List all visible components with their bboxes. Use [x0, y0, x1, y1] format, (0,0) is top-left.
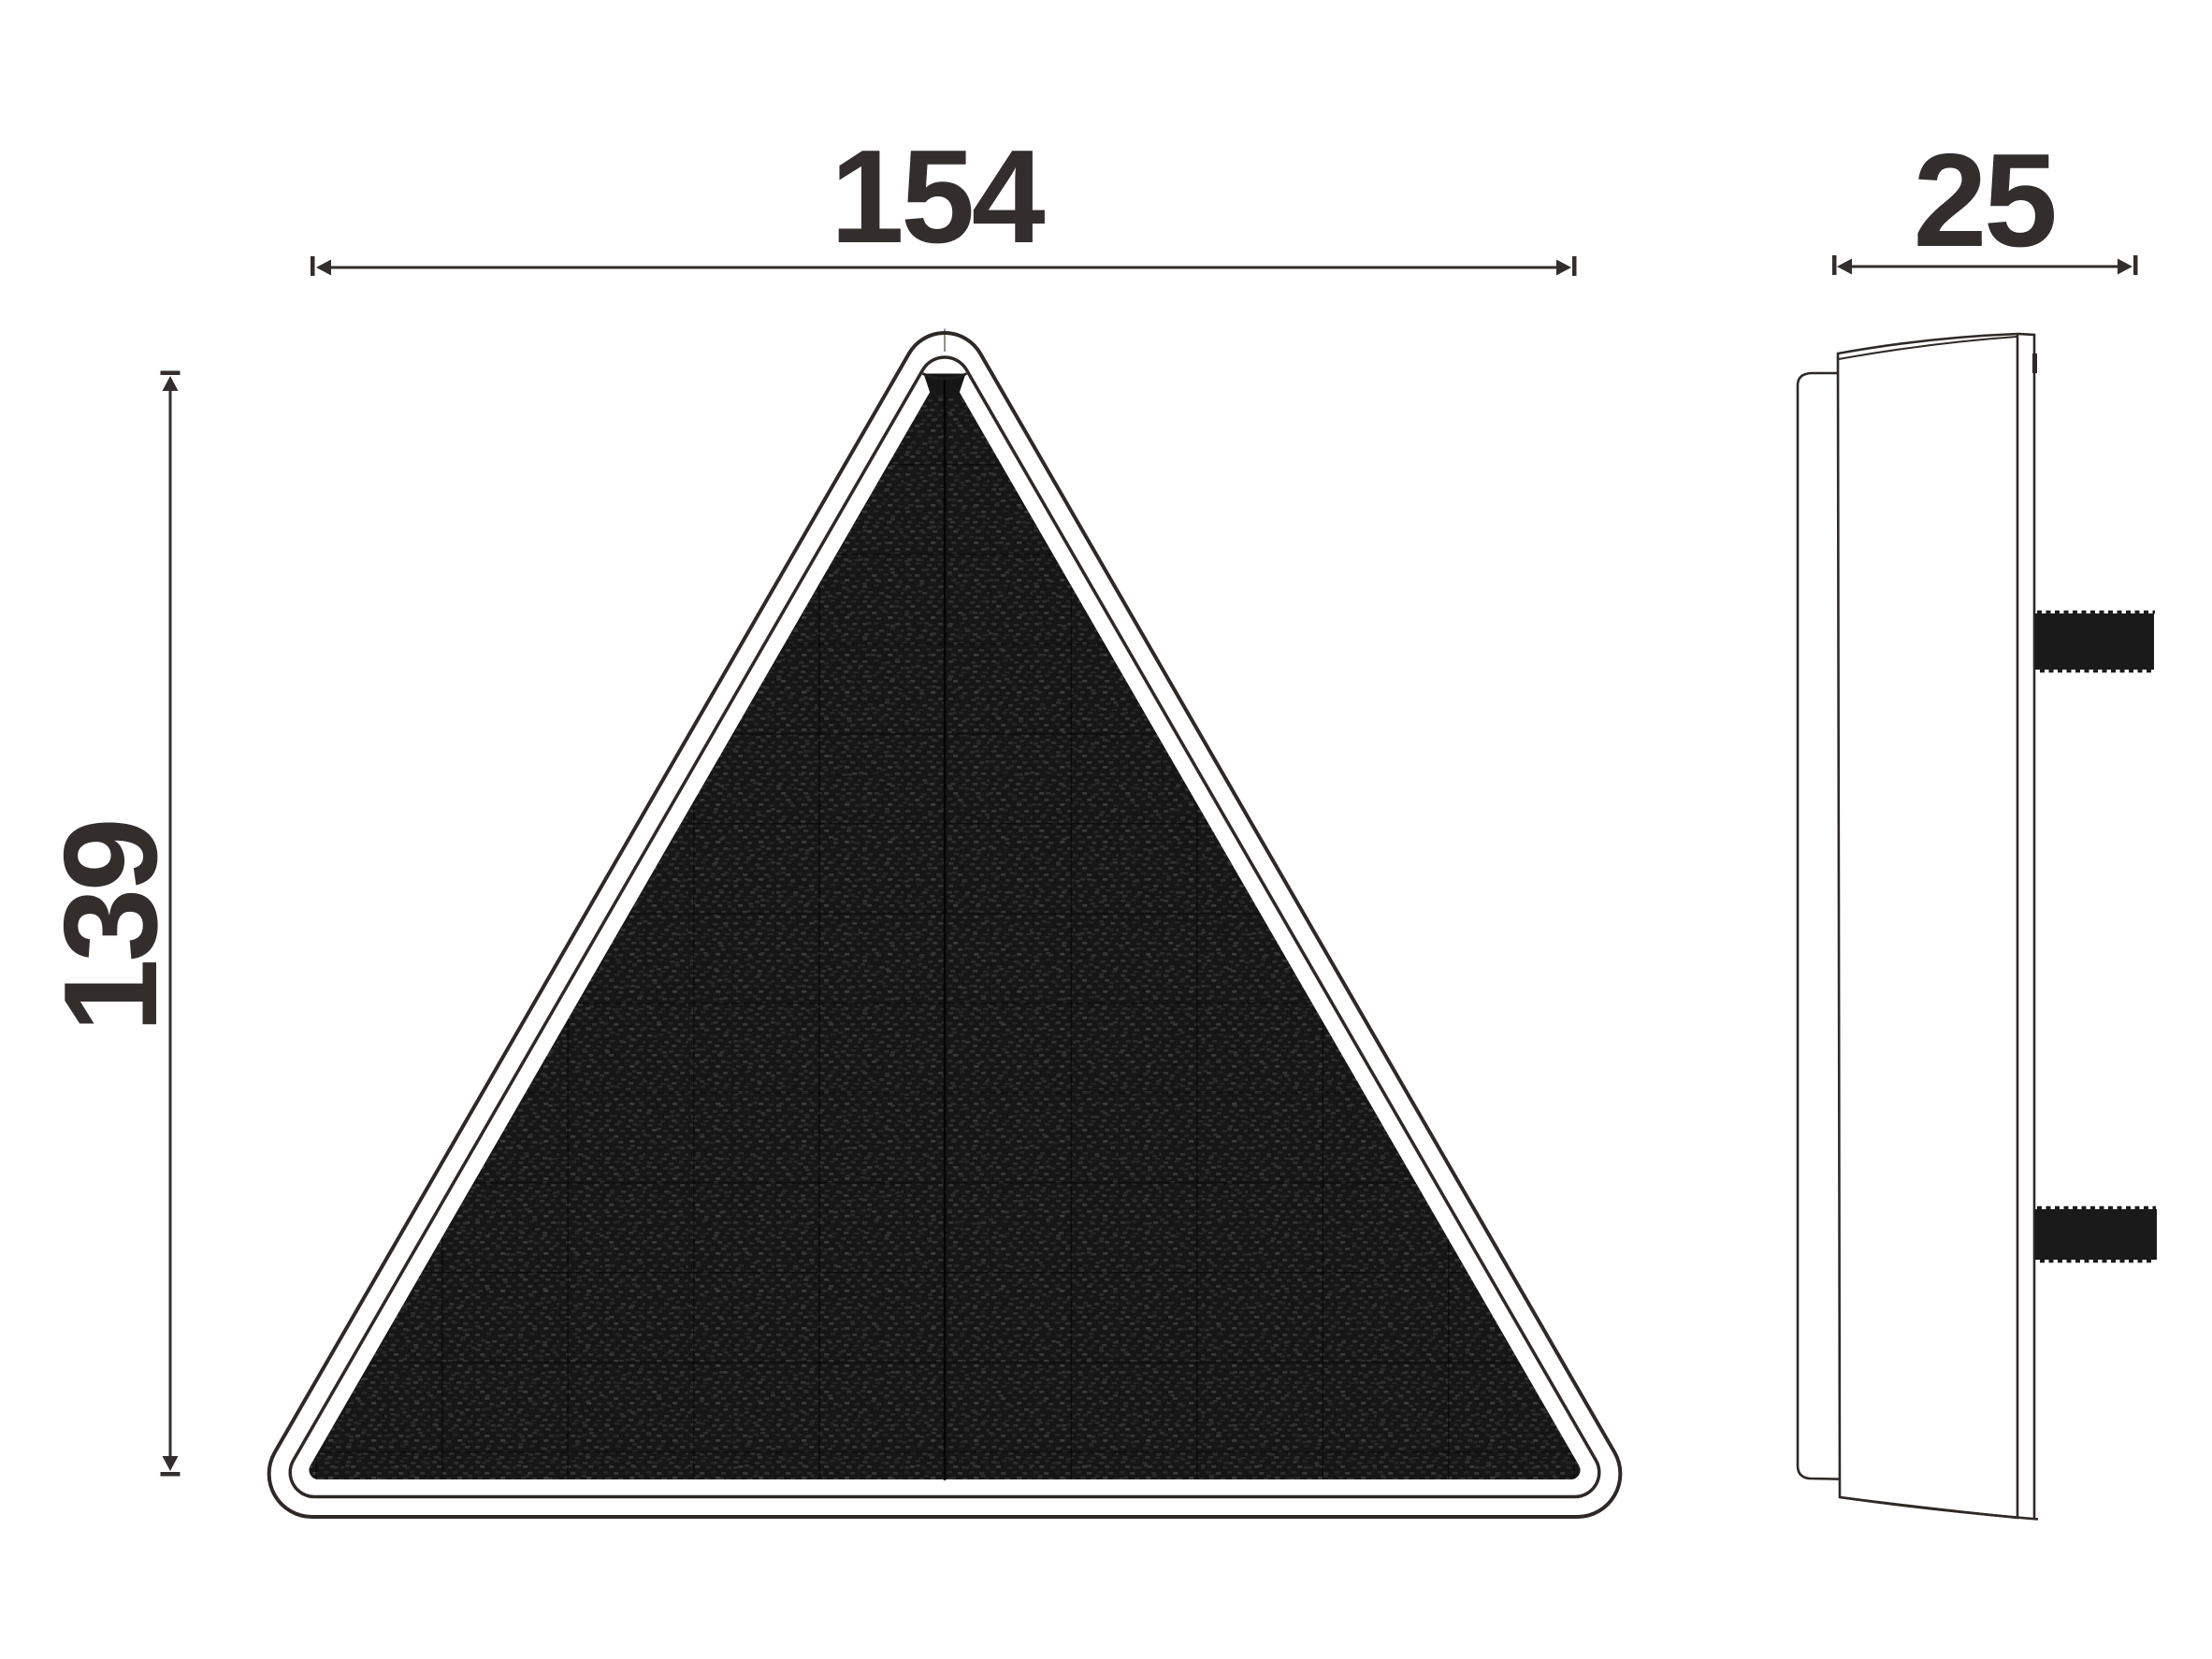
svg-text:25: 25	[1914, 126, 2055, 275]
svg-text:154: 154	[831, 123, 1046, 271]
svg-text:139: 139	[36, 821, 185, 1032]
